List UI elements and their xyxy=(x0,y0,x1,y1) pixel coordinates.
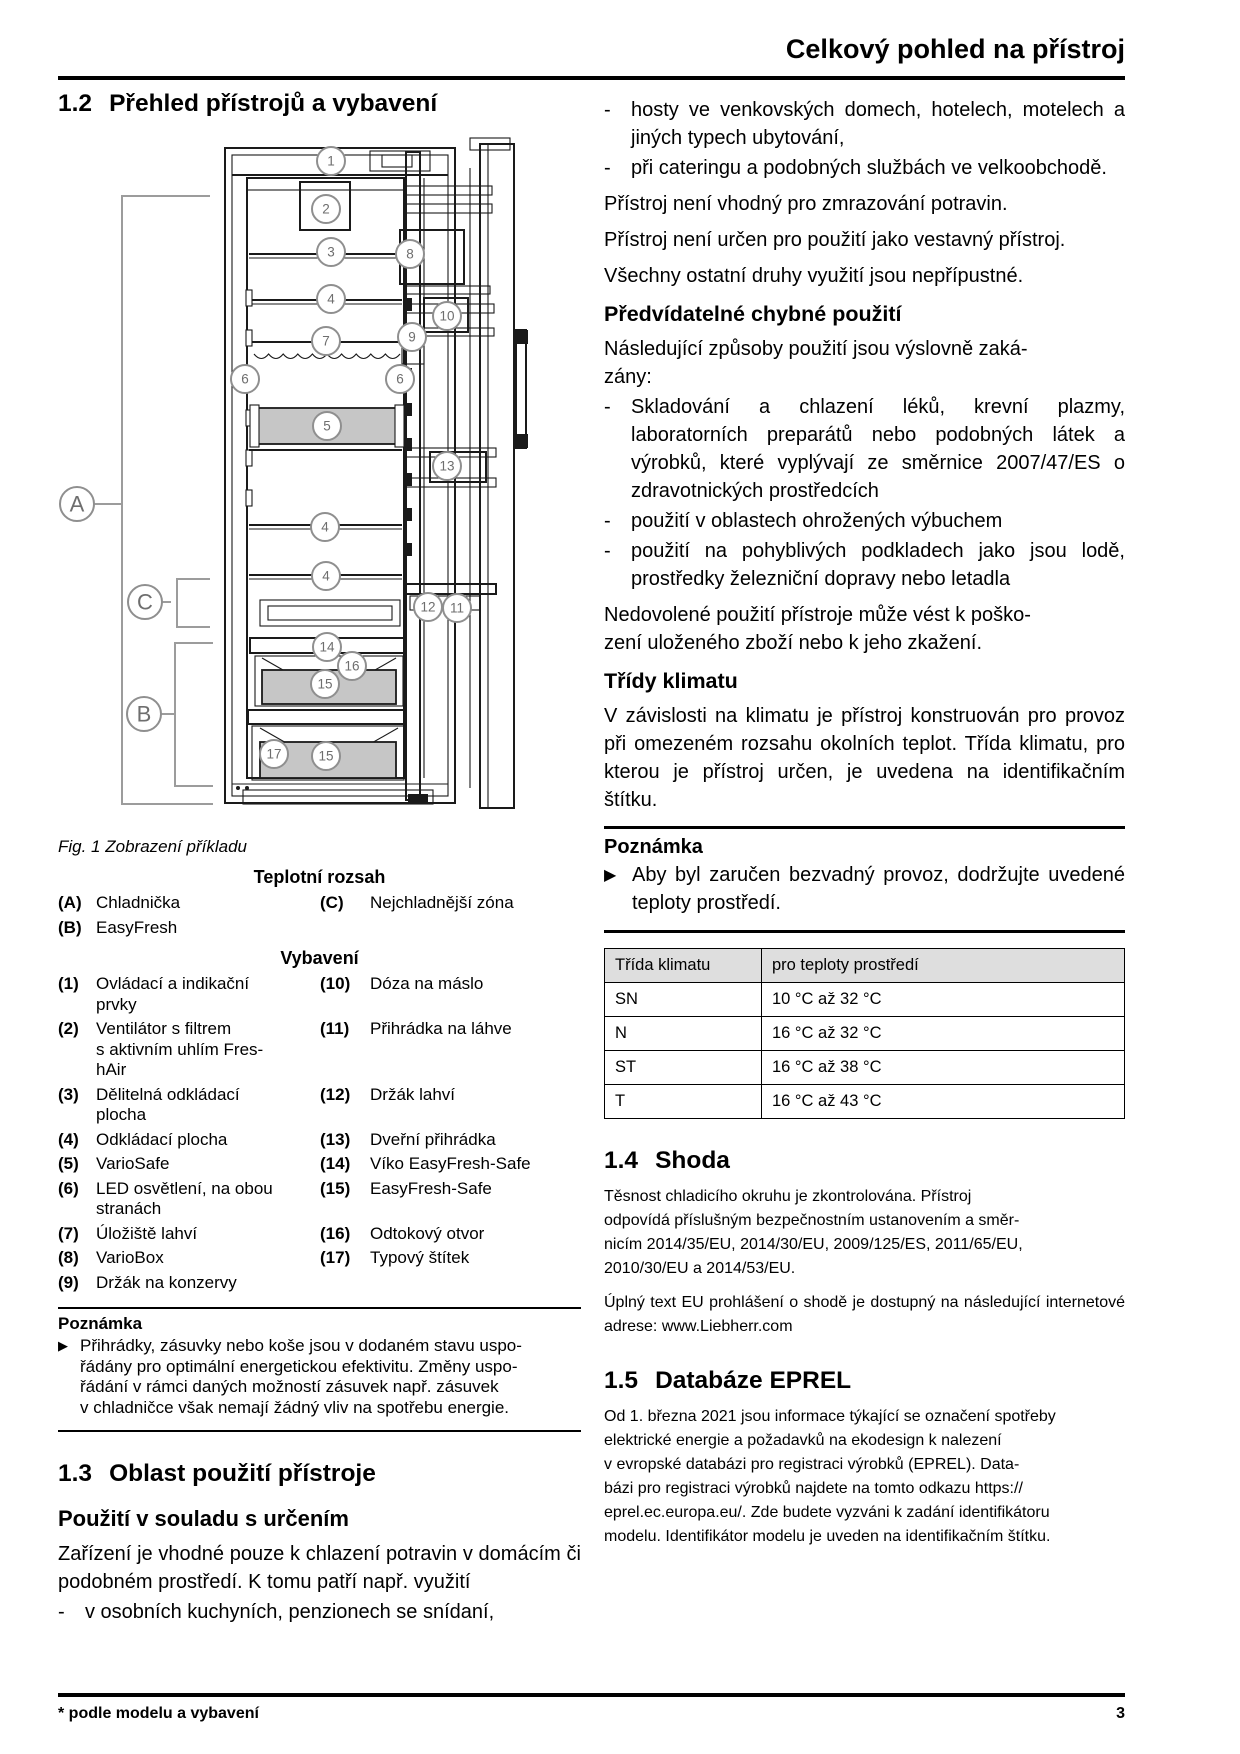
page-header-title: Celkový pohled na přístroj xyxy=(786,34,1125,65)
table-cell: T xyxy=(605,1085,762,1119)
svg-text:17: 17 xyxy=(266,747,281,762)
svg-text:4: 4 xyxy=(322,569,330,584)
legend-item: (7)Úložiště lahví xyxy=(58,1224,316,1245)
legend-item: (A)Chladnička xyxy=(58,893,316,914)
table-cell: N xyxy=(605,1017,762,1051)
table-row: SN 10 °C až 32 °C xyxy=(605,983,1125,1017)
section-number: 1.2 xyxy=(58,90,92,118)
svg-text:12: 12 xyxy=(420,600,435,615)
legend-item: (5)VarioSafe xyxy=(58,1154,316,1175)
section-title: Databáze EPREL xyxy=(655,1367,851,1395)
svg-text:16: 16 xyxy=(344,659,359,674)
note-text: Přihrádky, zásuvky nebo koše jsou v doda… xyxy=(80,1336,522,1418)
legend-item: (14)Víko EasyFresh-Safe xyxy=(320,1154,581,1175)
section-1-3-heading: 1.3 Oblast použití přístroje xyxy=(58,1460,581,1488)
section-1-4-heading: 1.4 Shoda xyxy=(604,1147,1125,1175)
svg-text:10: 10 xyxy=(439,309,454,324)
note-arrow-icon: ▶ xyxy=(58,1336,80,1418)
misuse-heading: Předvídatelné chybné použití xyxy=(604,302,1125,327)
svg-text:C: C xyxy=(137,590,153,615)
list-item: - při cateringu a podobných službách ve … xyxy=(604,154,1125,182)
paragraph: Všechny ostatní druhy využití jsou nepří… xyxy=(604,262,1125,290)
paragraph: V závislosti na klimatu je přístroj kons… xyxy=(604,702,1125,814)
page-number: 3 xyxy=(1116,1705,1125,1723)
section-title: Shoda xyxy=(655,1147,730,1175)
legend-item: (3)Dělitelná odkládací plocha xyxy=(58,1085,316,1126)
paragraph: Úplný text EU prohlášení o shodě je dost… xyxy=(604,1291,1125,1339)
note-text: Aby byl zaručen bezvadný provoz, dodržuj… xyxy=(632,861,1125,917)
header-rule xyxy=(58,76,1125,80)
section-number: 1.4 xyxy=(604,1147,638,1175)
legend-item: (10)Dóza na máslo xyxy=(320,974,581,1015)
refrigerator-diagram: 1 2 3 8 4 10 9 7 6 6 5 13 4 4 12 11 14 xyxy=(58,136,530,828)
note-box-left: Poznámka ▶ Přihrádky, zásuvky nebo koše … xyxy=(58,1307,581,1432)
bullet-dash: - xyxy=(604,507,631,535)
bullet-dash: - xyxy=(604,537,631,593)
temperature-legend: (A)Chladnička (C)Nejchladnější zóna (B)E… xyxy=(58,893,581,938)
note-box-right: Poznámka ▶ Aby byl zaručen bezvadný prov… xyxy=(604,826,1125,933)
legend-item xyxy=(320,918,581,939)
svg-text:13: 13 xyxy=(439,459,454,474)
section-number: 1.5 xyxy=(604,1367,638,1395)
legend-item: (12)Držák lahví xyxy=(320,1085,581,1126)
svg-text:7: 7 xyxy=(322,334,330,349)
list-item: - hosty ve venkovských domech, hotelech,… xyxy=(604,96,1125,152)
intended-use-paragraph: Zařízení je vhodné pouze k chlazení potr… xyxy=(58,1540,581,1596)
table-header-cell: pro teploty prostředí xyxy=(762,949,1125,983)
manual-page: Celkový pohled na přístroj 1.2 Přehled p… xyxy=(0,0,1240,1754)
footer-rule xyxy=(58,1693,1125,1697)
list-item: - Skladování a chlazení léků, krevní pla… xyxy=(604,393,1125,505)
paragraph: Nedovolené použití přístroje může vést k… xyxy=(604,601,1125,657)
table-cell: SN xyxy=(605,983,762,1017)
legend-item: (11)Přihrádka na láhve xyxy=(320,1019,581,1081)
bullet-dash: - xyxy=(604,96,631,152)
svg-text:2: 2 xyxy=(322,202,330,217)
table-header-cell: Třída klimatu xyxy=(605,949,762,983)
table-cell: 10 °C až 32 °C xyxy=(762,983,1125,1017)
section-title: Přehled přístrojů a vybavení xyxy=(109,90,437,118)
svg-text:9: 9 xyxy=(408,330,416,345)
figure-1: 1 2 3 8 4 10 9 7 6 6 5 13 4 4 12 11 14 xyxy=(58,136,581,833)
paragraph: Těsnost chladicího okruhu je zkontrolová… xyxy=(604,1185,1125,1281)
svg-text:1: 1 xyxy=(327,154,335,169)
svg-text:A: A xyxy=(70,492,85,517)
bullet-dash: - xyxy=(58,1598,85,1626)
equipment-legend-title: Vybavení xyxy=(58,948,581,969)
section-1-5-heading: 1.5 Databáze EPREL xyxy=(604,1367,1125,1395)
svg-text:B: B xyxy=(137,702,152,727)
temperature-legend-title: Teplotní rozsah xyxy=(58,867,581,888)
footer-note: * podle modelu a vybavení xyxy=(58,1705,259,1723)
legend-item: (8)VarioBox xyxy=(58,1248,316,1269)
svg-text:11: 11 xyxy=(450,601,464,616)
table-header-row: Třída klimatu pro teploty prostředí xyxy=(605,949,1125,983)
intended-use-subheading: Použití v souladu s určením xyxy=(58,1506,581,1532)
svg-text:8: 8 xyxy=(406,247,414,262)
left-column: 1.2 Přehled přístrojů a vybavení xyxy=(58,90,581,1626)
right-column: - hosty ve venkovských domech, hotelech,… xyxy=(604,94,1125,1549)
svg-text:15: 15 xyxy=(317,677,332,692)
table-cell: 16 °C až 38 °C xyxy=(762,1051,1125,1085)
table-cell: 16 °C až 43 °C xyxy=(762,1085,1125,1119)
paragraph: Přístroj není určen pro použití jako ves… xyxy=(604,226,1125,254)
note-arrow-icon: ▶ xyxy=(604,861,632,917)
section-number: 1.3 xyxy=(58,1460,92,1488)
bullet-dash: - xyxy=(604,393,631,505)
paragraph: Přístroj není vhodný pro zmrazování potr… xyxy=(604,190,1125,218)
figure-caption: Fig. 1 Zobrazení příkladu xyxy=(58,837,581,857)
note-title: Poznámka xyxy=(604,836,1125,859)
section-title: Oblast použití přístroje xyxy=(109,1460,376,1488)
svg-text:3: 3 xyxy=(327,245,335,260)
list-item: - v osobních kuchyních, penzionech se sn… xyxy=(58,1598,581,1626)
legend-item: (4)Odkládací plocha xyxy=(58,1130,316,1151)
table-row: T 16 °C až 43 °C xyxy=(605,1085,1125,1119)
list-item: - použití na pohyblivých podkladech jako… xyxy=(604,537,1125,593)
legend-item: (16)Odtokový otvor xyxy=(320,1224,581,1245)
paragraph: Od 1. března 2021 jsou informace týkajíc… xyxy=(604,1405,1125,1549)
legend-item: (13)Dveřní přihrádka xyxy=(320,1130,581,1151)
legend-item: (1)Ovládací a indikační prvky xyxy=(58,974,316,1015)
svg-text:15: 15 xyxy=(318,749,333,764)
table-row: N 16 °C až 32 °C xyxy=(605,1017,1125,1051)
legend-item: (2)Ventilátor s filtrem s aktivním uhlím… xyxy=(58,1019,316,1081)
climate-heading: Třídy klimatu xyxy=(604,669,1125,694)
legend-item: (17)Typový štítek xyxy=(320,1248,581,1269)
svg-text:4: 4 xyxy=(321,520,329,535)
climate-class-table: Třída klimatu pro teploty prostředí SN 1… xyxy=(604,948,1125,1119)
equipment-legend: (1)Ovládací a indikační prvky (10)Dóza n… xyxy=(58,974,581,1293)
bullet-dash: - xyxy=(604,154,631,182)
svg-text:4: 4 xyxy=(327,292,335,307)
svg-text:6: 6 xyxy=(241,372,249,387)
svg-text:5: 5 xyxy=(323,419,331,434)
svg-text:14: 14 xyxy=(319,640,335,655)
svg-text:6: 6 xyxy=(396,372,404,387)
list-item: - použití v oblastech ohrožených výbuche… xyxy=(604,507,1125,535)
legend-item: (6)LED osvětlení, na obou stranách xyxy=(58,1179,316,1220)
legend-item: (B)EasyFresh xyxy=(58,918,316,939)
legend-item: (9)Držák na konzervy xyxy=(58,1273,316,1294)
table-cell: 16 °C až 32 °C xyxy=(762,1017,1125,1051)
legend-item: (C)Nejchladnější zóna xyxy=(320,893,581,914)
page-footer: * podle modelu a vybavení 3 xyxy=(58,1705,1125,1723)
legend-item: (15)EasyFresh-Safe xyxy=(320,1179,581,1220)
paragraph: Následující způsoby použití jsou výslovn… xyxy=(604,335,1125,391)
table-row: ST 16 °C až 38 °C xyxy=(605,1051,1125,1085)
note-title: Poznámka xyxy=(58,1314,581,1334)
legend-item xyxy=(320,1273,581,1294)
table-cell: ST xyxy=(605,1051,762,1085)
door xyxy=(400,138,528,808)
section-1-2-heading: 1.2 Přehled přístrojů a vybavení xyxy=(58,90,581,118)
